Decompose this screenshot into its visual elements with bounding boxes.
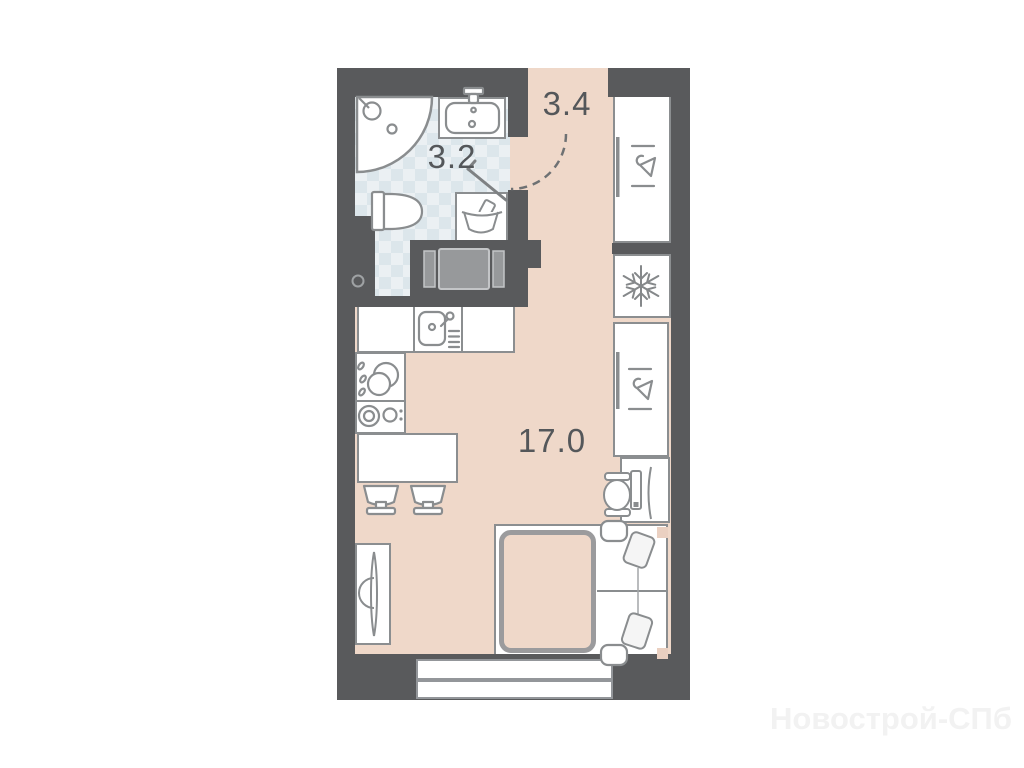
wardrobe-bottom	[613, 322, 669, 457]
floor-plan: 3.4 3.2 17.0 Новострой-СПб	[0, 0, 1024, 768]
wardrobe-top	[613, 93, 671, 243]
wall-bath-southwest-pier	[337, 216, 375, 307]
cooktop-module	[355, 400, 406, 434]
wall-left	[337, 68, 355, 700]
area-label-living-room: 17.0	[518, 422, 586, 460]
wall-fridge-stub	[612, 243, 671, 254]
washing-machine	[455, 192, 508, 242]
area-label-hallway: 3.4	[543, 85, 592, 123]
dining-table	[357, 433, 458, 483]
wall-bath-east-upper	[508, 97, 528, 137]
kitchen-counter	[357, 305, 515, 353]
bathroom-sink	[438, 97, 506, 139]
window	[416, 680, 613, 699]
wall-right	[671, 68, 690, 700]
window	[416, 659, 613, 680]
watermark: Новострой-СПб	[770, 701, 1012, 737]
area-label-bathroom: 3.2	[428, 138, 477, 176]
counter-divider	[413, 307, 415, 351]
wall-bath-east-lower	[508, 190, 528, 245]
blanket	[499, 530, 596, 653]
desk	[620, 457, 670, 523]
wall-top-left	[337, 68, 528, 97]
kitchen-module-sink2	[355, 352, 406, 402]
tv-stand	[355, 543, 391, 645]
wall-kitchen-north	[337, 296, 515, 307]
counter-divider	[461, 307, 463, 351]
fridge	[613, 254, 671, 318]
